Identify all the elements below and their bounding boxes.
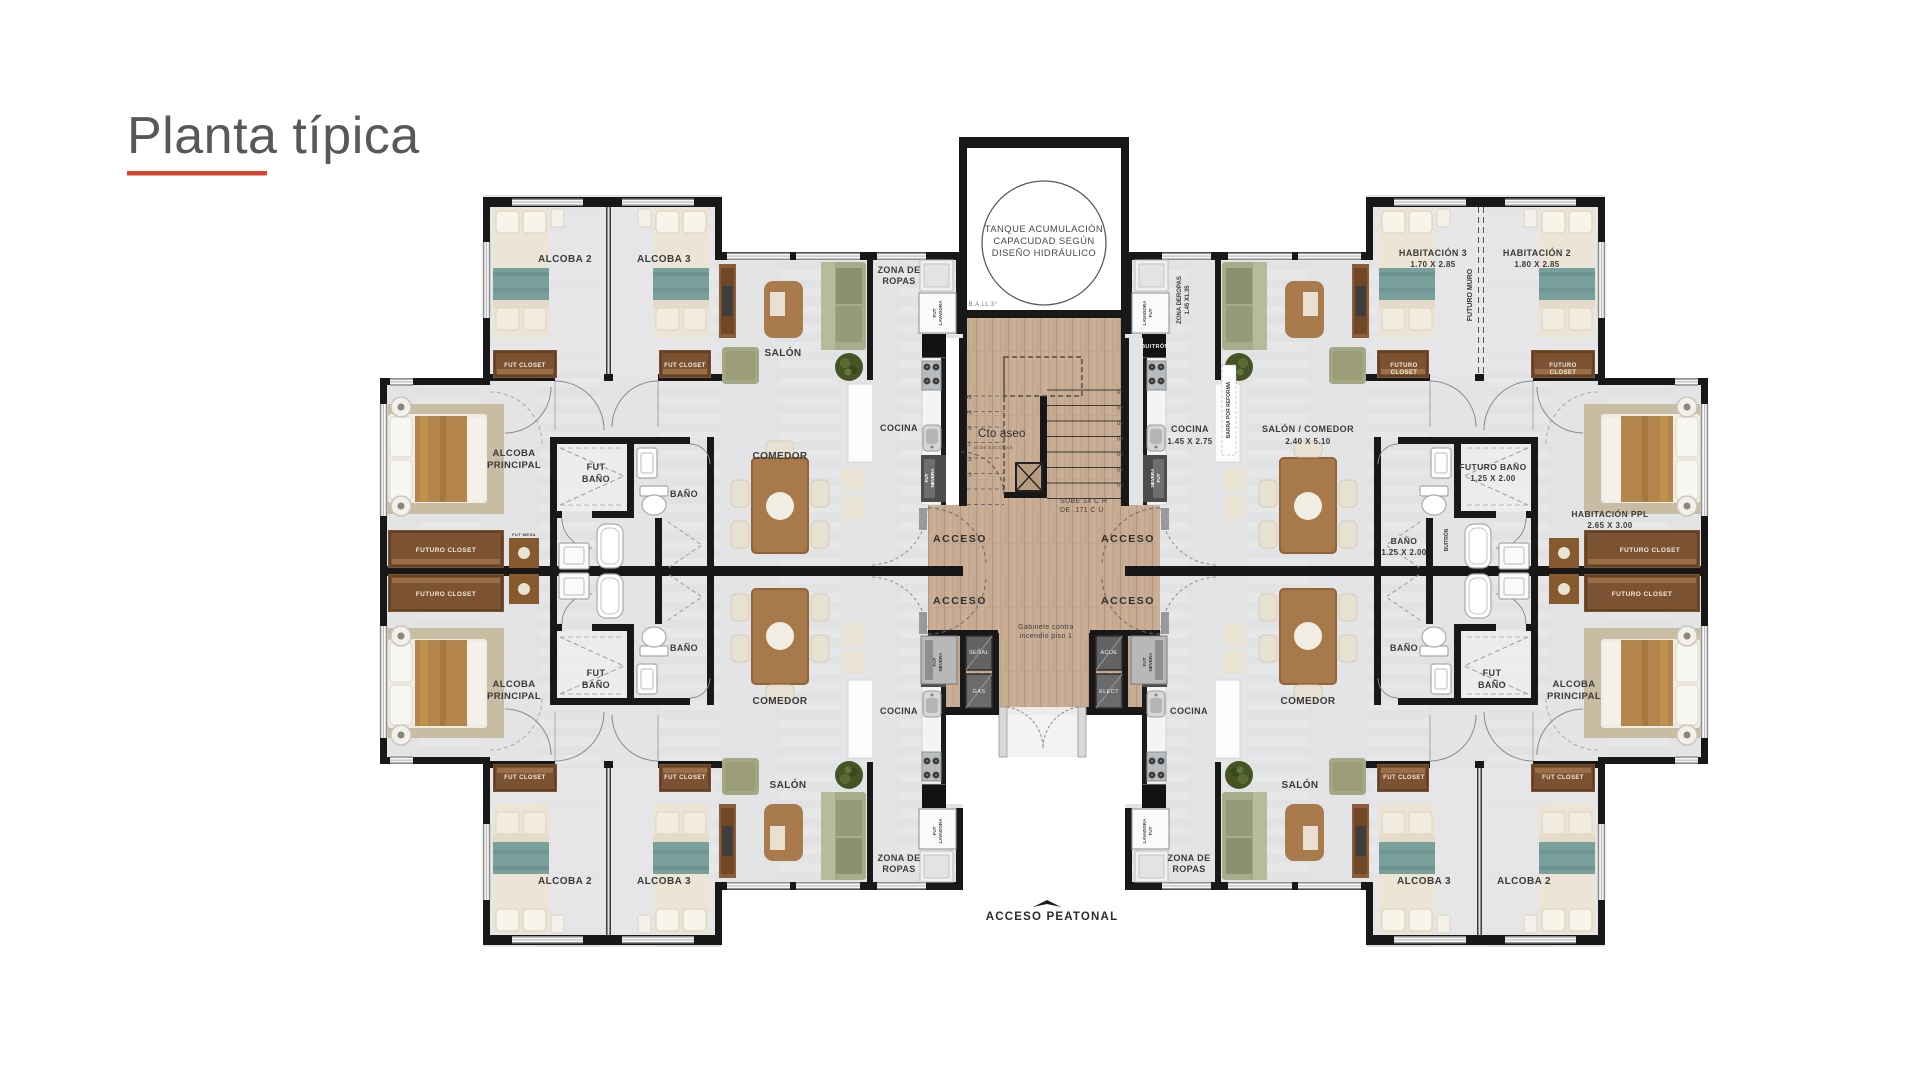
svg-text:FUT CLOSET: FUT CLOSET [1542,775,1584,781]
svg-text:08: 08 [965,395,972,401]
svg-text:TANQUE ACUMULACIÓN: TANQUE ACUMULACIÓN [985,224,1103,235]
svg-text:COMEDOR: COMEDOR [752,696,807,707]
svg-text:FUT CLOSET: FUT CLOSET [504,363,546,369]
svg-text:FUT: FUT [587,462,606,472]
svg-text:SALÓN: SALÓN [1282,778,1319,791]
svg-text:03: 03 [1117,452,1124,458]
svg-text:SEÑAL: SEÑAL [969,649,989,656]
svg-text:HABITACIÓN 2: HABITACIÓN 2 [1503,247,1571,258]
svg-text:11: 11 [965,442,972,448]
svg-text:04: 04 [1117,437,1124,443]
svg-text:ACCESO: ACCESO [933,595,987,607]
svg-text:FUTURO CLOSET: FUTURO CLOSET [1612,591,1672,598]
svg-text:FUT: FUT [1483,668,1502,678]
svg-text:ACCESO: ACCESO [933,533,987,545]
svg-text:ALCOBA: ALCOBA [492,448,535,459]
svg-text:ROPAS: ROPAS [1172,864,1205,874]
svg-text:FUT: FUT [932,657,937,666]
svg-text:B.A.LL 3°: B.A.LL 3° [969,302,998,308]
svg-text:GAS: GAS [973,689,986,695]
svg-text:FUT: FUT [932,826,937,835]
svg-text:Cto aseo: Cto aseo [978,428,1026,440]
svg-text:HABITACIÓN 3: HABITACIÓN 3 [1399,247,1467,258]
svg-text:FUTURO CLOSET: FUTURO CLOSET [416,547,476,554]
svg-text:DE .171 C U: DE .171 C U [1060,507,1104,514]
svg-text:SALÓN / COMEDOR: SALÓN / COMEDOR [1262,423,1354,434]
svg-text:Planta típica: Planta típica [127,107,420,165]
svg-text:ZONA DE: ZONA DE [878,853,921,863]
svg-text:ELECT: ELECT [1099,689,1119,695]
svg-text:13: 13 [965,473,972,479]
svg-text:BAÑO: BAÑO [1391,536,1418,546]
svg-text:FUT CLOSET: FUT CLOSET [664,363,706,369]
svg-text:1.45 X1.35: 1.45 X1.35 [1185,285,1191,315]
svg-text:ZONA DEROPAS: ZONA DEROPAS [1177,276,1183,324]
svg-text:incendio piso 1: incendio piso 1 [1020,633,1073,640]
svg-text:ZONA DE: ZONA DE [1168,853,1211,863]
svg-text:ACCESO: ACCESO [1101,595,1155,607]
svg-text:BAÑO: BAÑO [670,643,698,653]
svg-text:1.25 X 2.00: 1.25 X 2.00 [1470,474,1515,483]
svg-text:FUT MESA: FUT MESA [512,532,536,537]
svg-text:BARRA POR REFORMA: BARRA POR REFORMA [1226,381,1232,438]
svg-text:COCINA: COCINA [1170,706,1208,716]
svg-text:NEVERA: NEVERA [1148,652,1153,672]
svg-text:1.70 X 2.85: 1.70 X 2.85 [1410,260,1455,269]
svg-text:FUTURO CLOSET: FUTURO CLOSET [416,591,476,598]
svg-text:02: 02 [1117,468,1124,474]
svg-text:CLOSET: CLOSET [1550,370,1577,376]
svg-text:COCINA: COCINA [880,706,918,716]
svg-text:ALCOBA 2: ALCOBA 2 [538,876,592,887]
svg-text:10: 10 [965,426,972,432]
svg-text:BUITRÓN: BUITRÓN [1442,528,1450,551]
svg-text:ACCESO PEATONAL: ACCESO PEATONAL [986,911,1119,923]
svg-text:NEVERA: NEVERA [930,468,935,488]
svg-text:05: 05 [1117,421,1124,427]
svg-text:FUT CLOSET: FUT CLOSET [664,775,706,781]
svg-text:FUT: FUT [1148,826,1153,835]
svg-text:NEVERA: NEVERA [1150,468,1155,488]
svg-text:FUT: FUT [932,308,937,317]
svg-text:BAÑO: BAÑO [582,680,610,690]
svg-text:HABITACIÓN PPL: HABITACIÓN PPL [1571,508,1648,519]
svg-text:ROPAS: ROPAS [882,864,915,874]
svg-text:1.45 X 2.75: 1.45 X 2.75 [1167,437,1212,446]
svg-text:FUT: FUT [1156,473,1161,482]
svg-text:NEVERA: NEVERA [938,652,943,672]
svg-text:01: 01 [1117,483,1124,489]
svg-text:06: 06 [1117,406,1124,412]
svg-text:PRINCIPAL: PRINCIPAL [487,460,541,471]
svg-text:SALÓN: SALÓN [770,778,807,791]
svg-text:DISEÑO HIDRÁULICO: DISEÑO HIDRÁULICO [992,248,1096,259]
svg-text:ALCOBA 3: ALCOBA 3 [637,254,691,265]
svg-text:FUT: FUT [924,473,929,482]
svg-text:ALCOBA 2: ALCOBA 2 [1497,876,1551,887]
svg-text:FUTURO BAÑO: FUTURO BAÑO [1459,462,1526,472]
svg-text:BAÑO: BAÑO [1478,680,1506,690]
svg-text:PRINCIPAL: PRINCIPAL [487,691,541,702]
svg-text:BAÑO: BAÑO [582,474,610,484]
svg-text:09: 09 [965,411,972,417]
svg-text:SALÓN: SALÓN [765,346,802,359]
svg-text:BAÑO: BAÑO [670,489,698,499]
svg-text:CAPACUDAD SEGÚN: CAPACUDAD SEGÚN [993,236,1094,247]
svg-text:07: 07 [1117,390,1124,396]
svg-text:FUTURO CLOSET: FUTURO CLOSET [1620,547,1680,554]
svg-text:2.40 X 5.10: 2.40 X 5.10 [1285,437,1330,446]
svg-text:COMEDOR: COMEDOR [752,451,807,462]
svg-text:BAÑO: BAÑO [1390,643,1418,653]
svg-text:Gabinete contra: Gabinete contra [1018,624,1074,631]
svg-text:FUTURO: FUTURO [1390,363,1417,369]
svg-text:BUITRÓN: BUITRÓN [1141,342,1169,350]
svg-text:CLOSET: CLOSET [1391,370,1418,376]
svg-text:FUTURO MURO: FUTURO MURO [1467,268,1474,321]
svg-text:1.80 X 2.85: 1.80 X 2.85 [1514,260,1559,269]
svg-text:ROPAS: ROPAS [882,276,915,286]
svg-text:FUT CLOSET: FUT CLOSET [1383,775,1425,781]
svg-text:ALCOBA: ALCOBA [492,679,535,690]
svg-text:ALCOBA: ALCOBA [1552,679,1595,690]
svg-text:1.25 X 2.00: 1.25 X 2.00 [1381,548,1426,557]
svg-text:ALCOBA 3: ALCOBA 3 [1397,876,1451,887]
svg-text:FUTURO: FUTURO [1549,363,1576,369]
svg-text:12: 12 [965,457,972,463]
svg-text:M.DE ESCOBAS: M.DE ESCOBAS [974,445,1013,450]
svg-text:ACUE: ACUE [1101,650,1118,656]
svg-text:SUBE 14 C H: SUBE 14 C H [1060,498,1107,505]
svg-text:LAVADORA: LAVADORA [1142,818,1147,844]
svg-text:FUT: FUT [1148,308,1153,317]
svg-text:LAVADORA: LAVADORA [1142,300,1147,326]
svg-text:FUT: FUT [587,668,606,678]
svg-text:LAVADORA: LAVADORA [938,818,943,844]
svg-text:COCINA: COCINA [880,423,918,433]
svg-text:ACCESO: ACCESO [1101,533,1155,545]
svg-text:ALCOBA 3: ALCOBA 3 [637,876,691,887]
svg-text:COCINA: COCINA [1171,424,1209,434]
svg-text:ALCOBA 2: ALCOBA 2 [538,254,592,265]
svg-text:PRINCIPAL: PRINCIPAL [1547,691,1601,702]
svg-text:2.65 X 3.00: 2.65 X 3.00 [1587,521,1632,530]
svg-text:FUT CLOSET: FUT CLOSET [504,775,546,781]
svg-text:COMEDOR: COMEDOR [1280,696,1335,707]
svg-text:LAVADORA: LAVADORA [938,300,943,326]
svg-text:FUT: FUT [1142,657,1147,666]
svg-text:ZONA DE: ZONA DE [878,265,921,275]
